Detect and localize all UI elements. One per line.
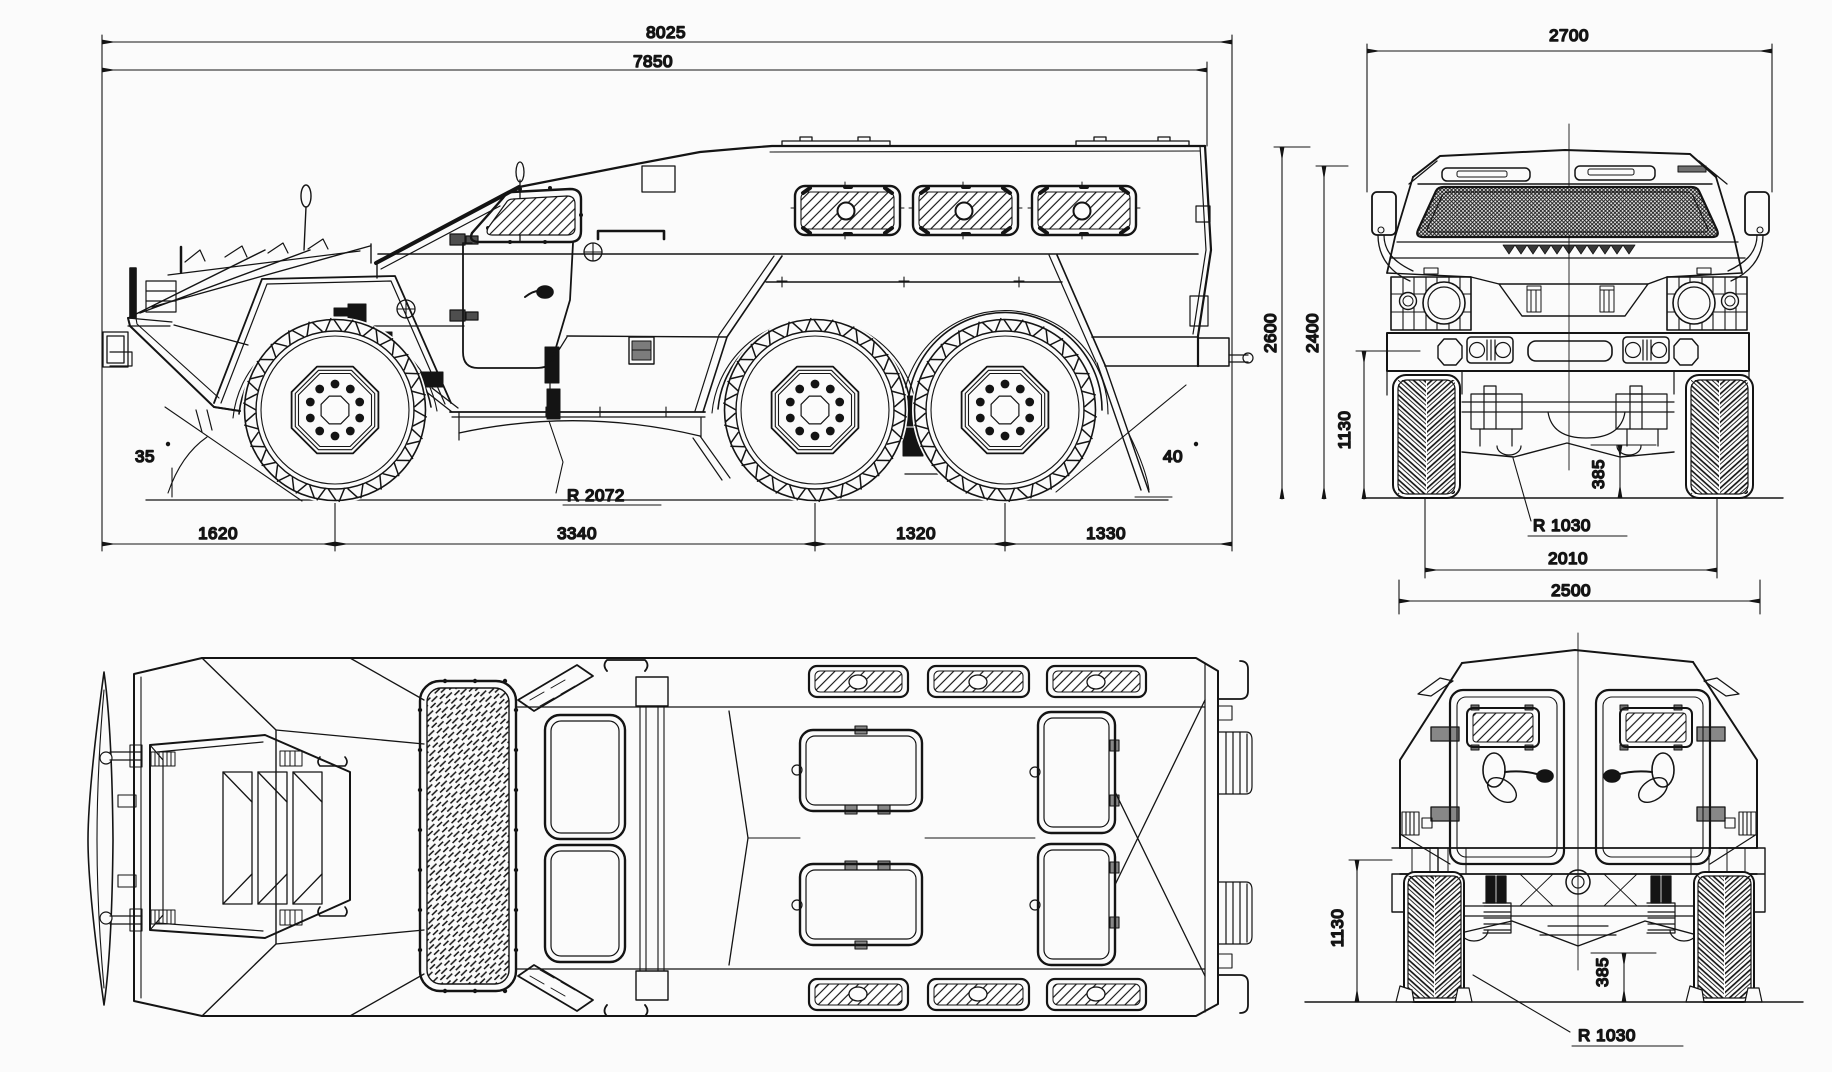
svg-text:40: 40 xyxy=(1163,447,1183,466)
svg-text:385: 385 xyxy=(1589,459,1608,489)
svg-text:2500: 2500 xyxy=(1551,581,1591,600)
svg-text:7850: 7850 xyxy=(633,52,673,71)
svg-text:2700: 2700 xyxy=(1549,26,1589,45)
svg-text:R 2072: R 2072 xyxy=(567,486,625,505)
svg-text:35: 35 xyxy=(135,447,155,466)
svg-text:1320: 1320 xyxy=(896,524,936,543)
svg-text:1330: 1330 xyxy=(1086,524,1126,543)
svg-text:385: 385 xyxy=(1593,957,1612,987)
svg-text:1620: 1620 xyxy=(198,524,238,543)
svg-text:3340: 3340 xyxy=(557,524,597,543)
svg-text:2600: 2600 xyxy=(1261,313,1280,353)
svg-text:2400: 2400 xyxy=(1303,313,1322,353)
svg-text:1130: 1130 xyxy=(1335,411,1354,450)
svg-text:R 1030: R 1030 xyxy=(1578,1026,1636,1045)
svg-text:8025: 8025 xyxy=(646,23,686,42)
svg-text:R 1030: R 1030 xyxy=(1533,516,1591,535)
svg-text:°: ° xyxy=(1194,442,1198,453)
svg-text:2010: 2010 xyxy=(1548,549,1588,568)
svg-text:°: ° xyxy=(166,442,170,453)
svg-text:1130: 1130 xyxy=(1328,909,1347,948)
